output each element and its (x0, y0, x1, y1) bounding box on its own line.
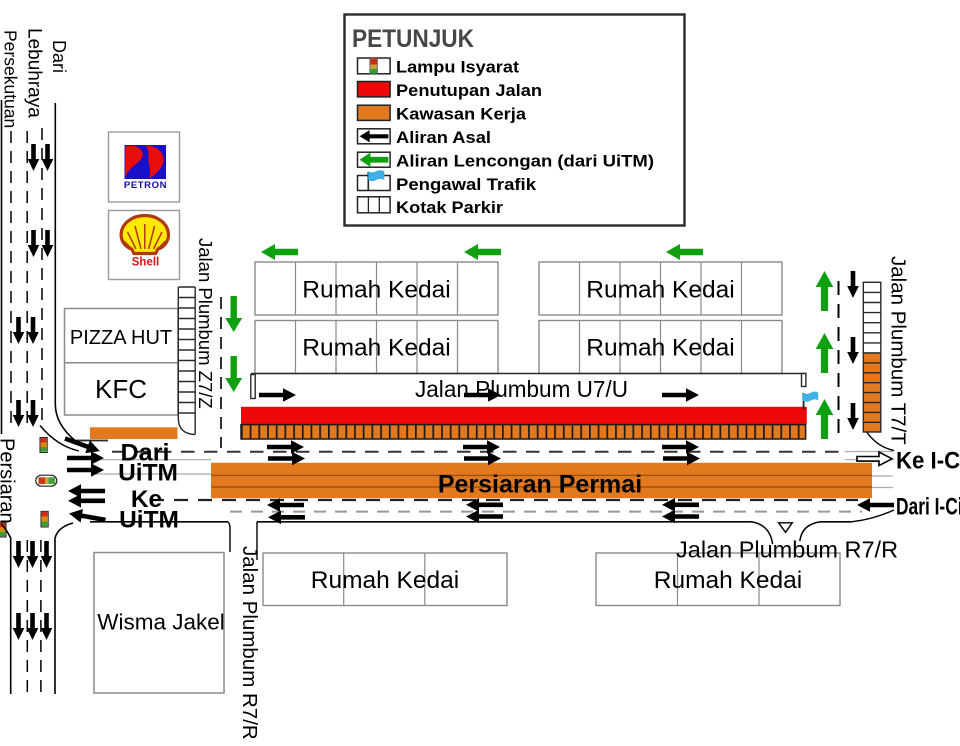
svg-text:KFC: KFC (95, 374, 147, 404)
svg-text:Penutupan Jalan: Penutupan Jalan (396, 81, 542, 100)
svg-text:Aliran Lencongan (dari UiTM): Aliran Lencongan (dari UiTM) (396, 152, 654, 171)
svg-text:Persiaran Permai: Persiaran Permai (438, 471, 642, 499)
svg-text:Persiaran: Persiaran (0, 438, 18, 524)
svg-text:Jalan Plumbum R7/R: Jalan Plumbum R7/R (676, 537, 898, 563)
svg-text:Ke I-City: Ke I-City (896, 448, 960, 475)
svg-text:Rumah Kedai: Rumah Kedai (311, 567, 459, 594)
svg-text:Persekutuan: Persekutuan (1, 30, 21, 128)
svg-text:PIZZA HUT: PIZZA HUT (70, 327, 172, 349)
svg-text:PETRON: PETRON (124, 180, 167, 191)
svg-text:UiTM: UiTM (119, 507, 179, 534)
svg-text:Jalan Plumbum Z7/Z: Jalan Plumbum Z7/Z (195, 238, 216, 409)
svg-text:Aliran Asal: Aliran Asal (396, 128, 491, 147)
svg-text:Shell: Shell (132, 257, 159, 269)
svg-text:Rumah Kedai: Rumah Kedai (302, 335, 450, 362)
svg-text:PETUNJUK: PETUNJUK (352, 25, 474, 53)
svg-text:Lampu Isyarat: Lampu Isyarat (396, 58, 519, 77)
svg-text:Rumah Kedai: Rumah Kedai (302, 277, 450, 304)
svg-text:Jalan Plumbum R7/R: Jalan Plumbum R7/R (238, 546, 261, 740)
svg-text:Jalan Plumbum U7/U: Jalan Plumbum U7/U (415, 376, 628, 402)
svg-text:UiTM: UiTM (118, 460, 178, 487)
svg-text:Dari: Dari (49, 40, 69, 73)
svg-text:Kawasan Kerja: Kawasan Kerja (396, 105, 527, 124)
svg-text:Dari I-City: Dari I-City (896, 494, 960, 521)
svg-text:Pengawal Trafik: Pengawal Trafik (396, 175, 537, 194)
svg-text:Rumah Kedai: Rumah Kedai (654, 567, 802, 594)
svg-text:Jalan Plumbum T7/T: Jalan Plumbum T7/T (887, 256, 910, 445)
svg-text:Lebuhraya: Lebuhraya (24, 28, 45, 118)
svg-text:Rumah Kedai: Rumah Kedai (586, 335, 734, 362)
svg-text:Wisma Jakel: Wisma Jakel (97, 610, 225, 635)
svg-text:Rumah Kedai: Rumah Kedai (586, 277, 734, 304)
svg-text:Kotak Parkir: Kotak Parkir (396, 198, 503, 217)
